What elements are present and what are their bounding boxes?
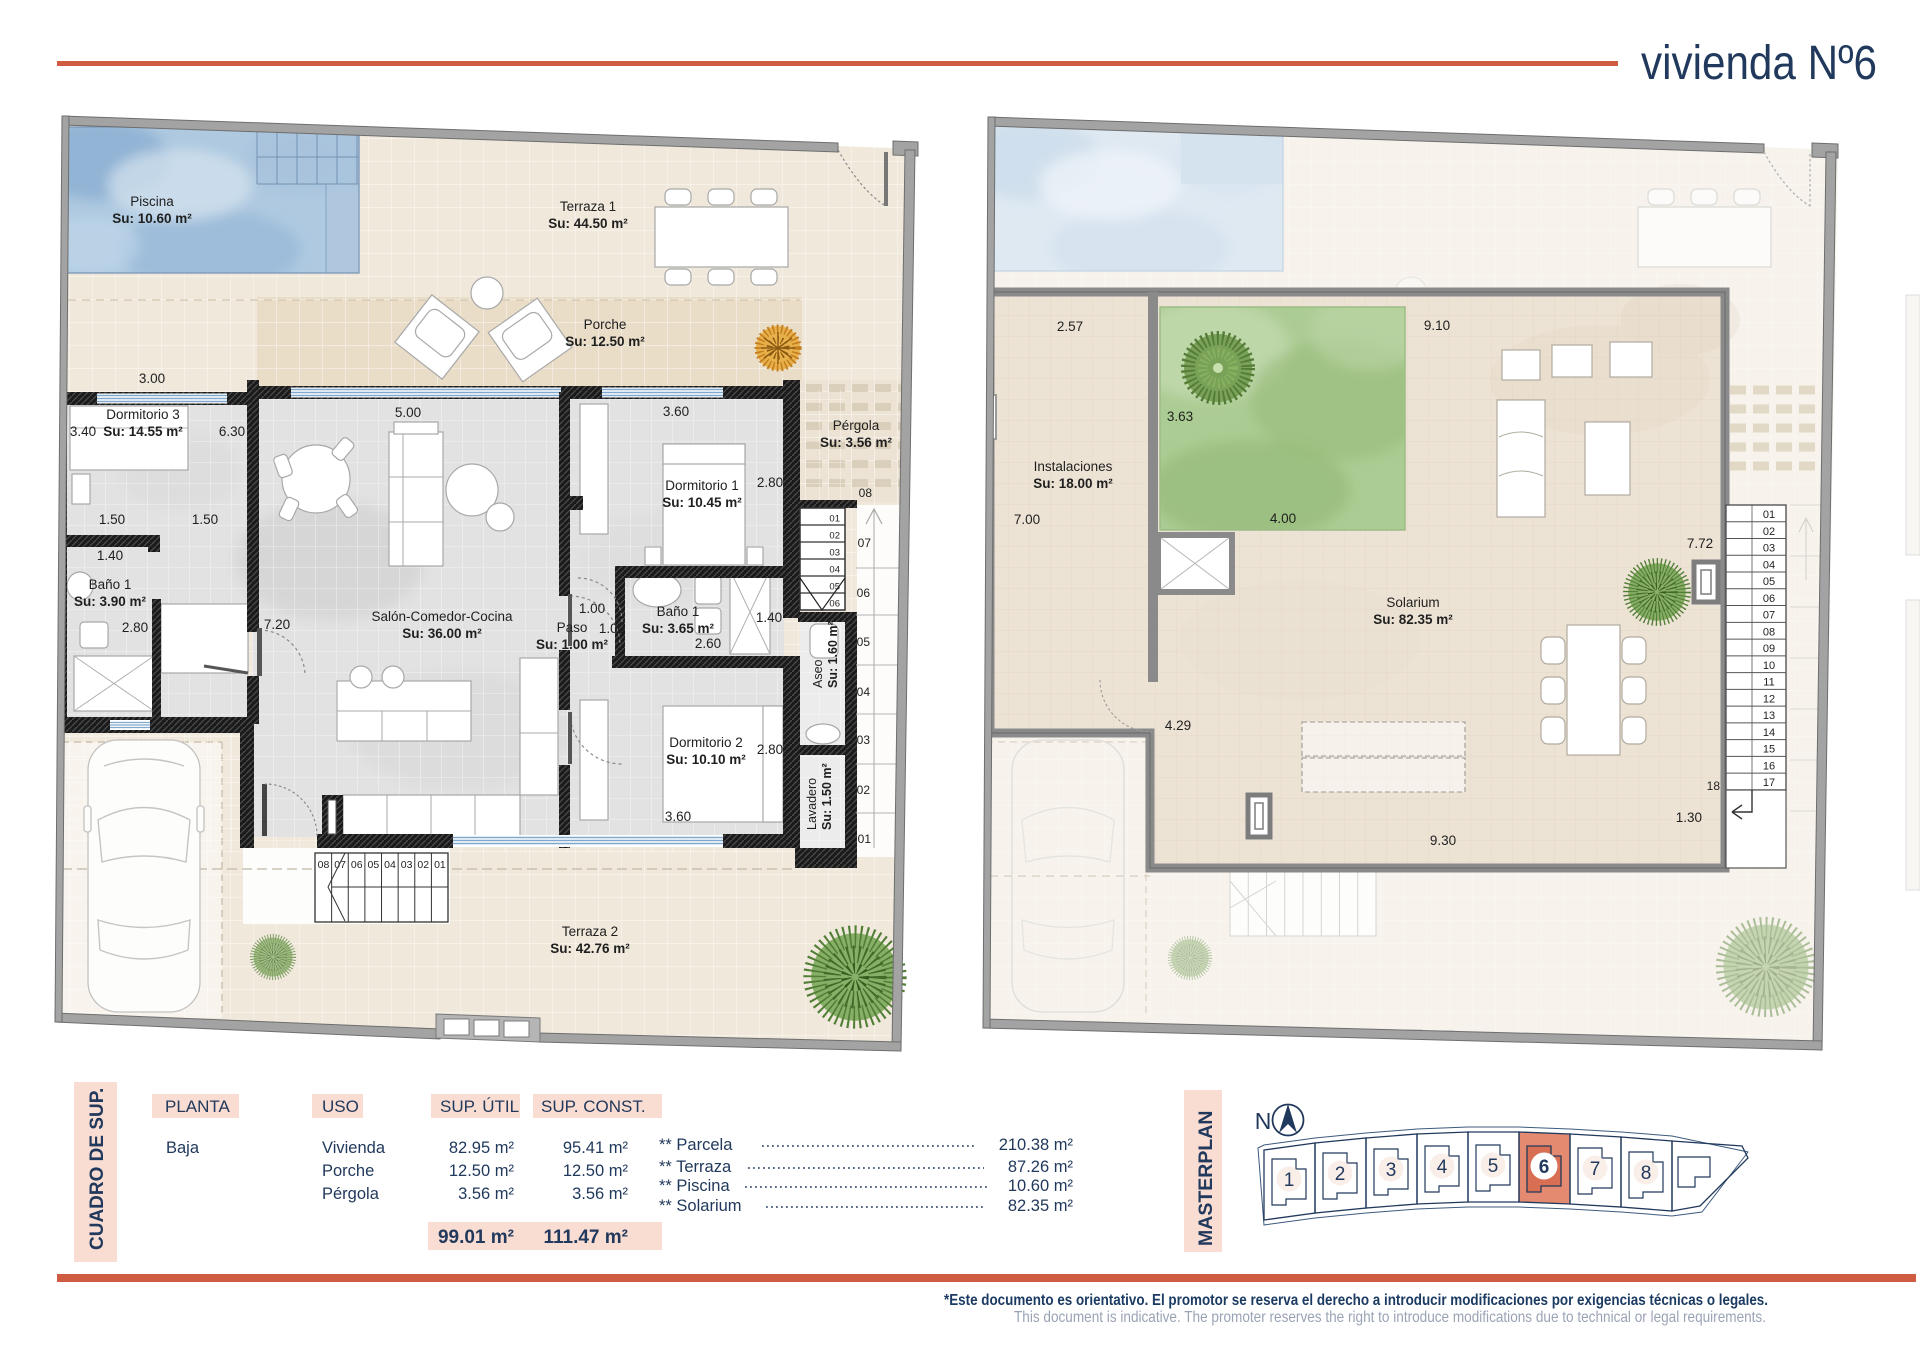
svg-text:3.60: 3.60 [663,404,689,419]
svg-text:02: 02 [1763,526,1775,538]
svg-text:1.40: 1.40 [756,610,782,625]
svg-text:01: 01 [829,514,840,525]
svg-text:MASTERPLAN: MASTERPLAN [1195,1111,1217,1246]
svg-text:1.50: 1.50 [192,512,218,527]
svg-text:7.00: 7.00 [1014,512,1040,527]
svg-text:06: 06 [857,586,871,600]
svg-text:04: 04 [829,565,840,576]
svg-text:08: 08 [318,859,330,871]
svg-text:Terraza 1: Terraza 1 [560,199,616,214]
svg-text:Baño 1: Baño 1 [657,604,700,619]
svg-text:11: 11 [1763,677,1774,689]
svg-text:09: 09 [1763,643,1775,655]
svg-text:15: 15 [1763,744,1775,756]
svg-text:1.00: 1.00 [599,621,625,636]
svg-text:SUP. CONST.: SUP. CONST. [541,1097,646,1116]
svg-text:111.47 m²: 111.47 m² [543,1227,628,1248]
svg-text:Su: 10.45 m²: Su: 10.45 m² [662,495,742,510]
svg-text:10.60 m²: 10.60 m² [1008,1177,1074,1195]
svg-text:95.41 m²: 95.41 m² [563,1139,629,1157]
svg-text:Su: 1.00 m²: Su: 1.00 m² [536,637,609,652]
svg-text:** Solarium: ** Solarium [659,1197,742,1215]
svg-text:12: 12 [1763,693,1775,705]
svg-text:02: 02 [417,859,429,871]
svg-text:Aseo: Aseo [811,659,825,688]
svg-text:** Parcela: ** Parcela [659,1136,733,1154]
svg-text:12.50 m²: 12.50 m² [449,1162,515,1180]
svg-text:3.60: 3.60 [665,809,691,824]
svg-text:3.40: 3.40 [70,424,96,439]
svg-text:Su: 10.60 m²: Su: 10.60 m² [112,211,192,226]
svg-text:Paso: Paso [557,620,588,635]
svg-text:Su: 10.10 m²: Su: 10.10 m² [666,752,746,767]
svg-text:06: 06 [351,859,363,871]
svg-text:06: 06 [1763,593,1775,605]
svg-text:1: 1 [1284,1170,1295,1191]
svg-text:2.80: 2.80 [757,742,783,757]
svg-text:3: 3 [1386,1160,1397,1181]
svg-text:Su: 44.50 m²: Su: 44.50 m² [548,216,628,231]
svg-text:Lavadero: Lavadero [805,778,819,830]
svg-text:Porche: Porche [584,317,627,332]
svg-text:SUP. ÚTIL: SUP. ÚTIL [440,1097,519,1116]
svg-text:7: 7 [1590,1159,1601,1180]
svg-text:82.35 m²: 82.35 m² [1008,1197,1074,1215]
svg-text:*Este documento es orientativo: *Este documento es orientativo. El promo… [944,1292,1768,1309]
svg-text:7.20: 7.20 [264,617,290,632]
svg-text:Su: 42.76 m²: Su: 42.76 m² [550,941,630,956]
svg-text:3.56 m²: 3.56 m² [458,1185,514,1203]
svg-text:Su: 1.60 m²: Su: 1.60 m² [826,621,840,688]
svg-text:3.00: 3.00 [139,371,165,386]
svg-text:Su: 1.50 m²: Su: 1.50 m² [820,763,834,830]
svg-text:2: 2 [1335,1164,1346,1185]
svg-text:2.80: 2.80 [757,475,783,490]
svg-text:05: 05 [1763,576,1775,588]
svg-text:03: 03 [1763,543,1775,555]
svg-text:14: 14 [1763,727,1775,739]
svg-text:Instalaciones: Instalaciones [1034,459,1113,474]
svg-text:PLANTA: PLANTA [165,1097,231,1116]
svg-text:04: 04 [384,859,396,871]
svg-text:2.80: 2.80 [122,620,148,635]
svg-text:Pérgola: Pérgola [833,418,880,433]
svg-text:4: 4 [1437,1157,1448,1178]
svg-text:Piscina: Piscina [130,194,174,209]
svg-text:4.00: 4.00 [1270,511,1296,526]
svg-text:08: 08 [1763,626,1775,638]
svg-text:Terraza 2: Terraza 2 [562,924,618,939]
svg-text:87.26 m²: 87.26 m² [1008,1158,1074,1176]
svg-text:Su: 3.56 m²: Su: 3.56 m² [820,435,893,450]
svg-text:Pérgola: Pérgola [322,1185,380,1203]
svg-text:7.72: 7.72 [1687,536,1713,551]
svg-text:** Terraza: ** Terraza [659,1158,732,1176]
svg-text:06: 06 [829,599,840,610]
svg-text:17: 17 [1763,777,1775,789]
svg-text:02: 02 [829,531,840,542]
svg-text:Su: 18.00 m²: Su: 18.00 m² [1033,476,1113,491]
svg-text:3.63: 3.63 [1167,409,1193,424]
svg-text:Dormitorio 3: Dormitorio 3 [106,407,180,422]
svg-text:Baño 1: Baño 1 [89,577,132,592]
svg-text:1.30: 1.30 [1676,810,1702,825]
svg-text:This document is indicative. T: This document is indicative. The promote… [1014,1309,1766,1326]
svg-text:Su: 14.55 m²: Su: 14.55 m² [103,424,183,439]
svg-text:2.60: 2.60 [695,636,721,651]
svg-text:Su: 12.50 m²: Su: 12.50 m² [565,334,645,349]
svg-text:04: 04 [1763,559,1775,571]
svg-text:03: 03 [829,548,840,559]
svg-text:Baja: Baja [166,1139,200,1157]
svg-text:10: 10 [1763,660,1775,672]
svg-text:03: 03 [401,859,413,871]
svg-text:** Piscina: ** Piscina [659,1177,730,1195]
svg-text:vivienda Nº6: vivienda Nº6 [1641,37,1877,90]
svg-text:1.40: 1.40 [97,548,123,563]
svg-text:99.01 m²: 99.01 m² [438,1227,514,1248]
svg-text:Su: 3.65 m²: Su: 3.65 m² [642,621,715,636]
svg-text:Su: 82.35 m²: Su: 82.35 m² [1373,612,1453,627]
svg-text:07: 07 [1763,610,1775,622]
svg-text:210.38 m²: 210.38 m² [999,1136,1074,1154]
svg-text:01: 01 [434,859,446,871]
svg-text:05: 05 [368,859,380,871]
svg-text:04: 04 [857,685,871,699]
svg-text:82.95 m²: 82.95 m² [449,1139,515,1157]
svg-text:USO: USO [322,1097,359,1116]
svg-text:Su: 3.90 m²: Su: 3.90 m² [74,594,147,609]
svg-text:Solarium: Solarium [1386,595,1439,610]
svg-text:Dormitorio 2: Dormitorio 2 [669,735,743,750]
svg-text:3.56 m²: 3.56 m² [572,1185,628,1203]
svg-text:Porche: Porche [322,1162,374,1180]
svg-text:05: 05 [857,635,871,649]
svg-text:6: 6 [1539,1157,1550,1178]
svg-text:02: 02 [857,783,871,797]
svg-text:9.30: 9.30 [1430,833,1456,848]
svg-text:12.50 m²: 12.50 m² [563,1162,629,1180]
svg-text:01: 01 [1763,509,1775,521]
svg-text:6.30: 6.30 [219,424,245,439]
svg-text:08: 08 [859,486,873,500]
svg-text:4.29: 4.29 [1165,718,1191,733]
svg-text:5: 5 [1488,1156,1499,1177]
svg-text:13: 13 [1763,710,1775,722]
svg-text:9.10: 9.10 [1424,318,1450,333]
svg-text:07: 07 [858,536,872,550]
svg-text:Su: 36.00 m²: Su: 36.00 m² [402,626,482,641]
svg-text:16: 16 [1763,760,1775,772]
svg-text:2.57: 2.57 [1057,319,1083,334]
svg-text:1.00: 1.00 [579,601,605,616]
svg-text:01: 01 [858,832,872,846]
svg-text:03: 03 [857,733,871,747]
svg-text:Dormitorio 1: Dormitorio 1 [665,478,739,493]
svg-text:18: 18 [1707,779,1721,793]
svg-text:07: 07 [334,859,346,871]
svg-text:N: N [1255,1108,1272,1134]
svg-text:8: 8 [1641,1163,1652,1184]
svg-text:Salón-Comedor-Cocina: Salón-Comedor-Cocina [371,609,513,624]
svg-text:1.50: 1.50 [99,512,125,527]
svg-text:5.00: 5.00 [395,405,421,420]
svg-text:Vivienda: Vivienda [322,1139,386,1157]
svg-text:CUADRO DE SUP.: CUADRO DE SUP. [87,1088,108,1250]
